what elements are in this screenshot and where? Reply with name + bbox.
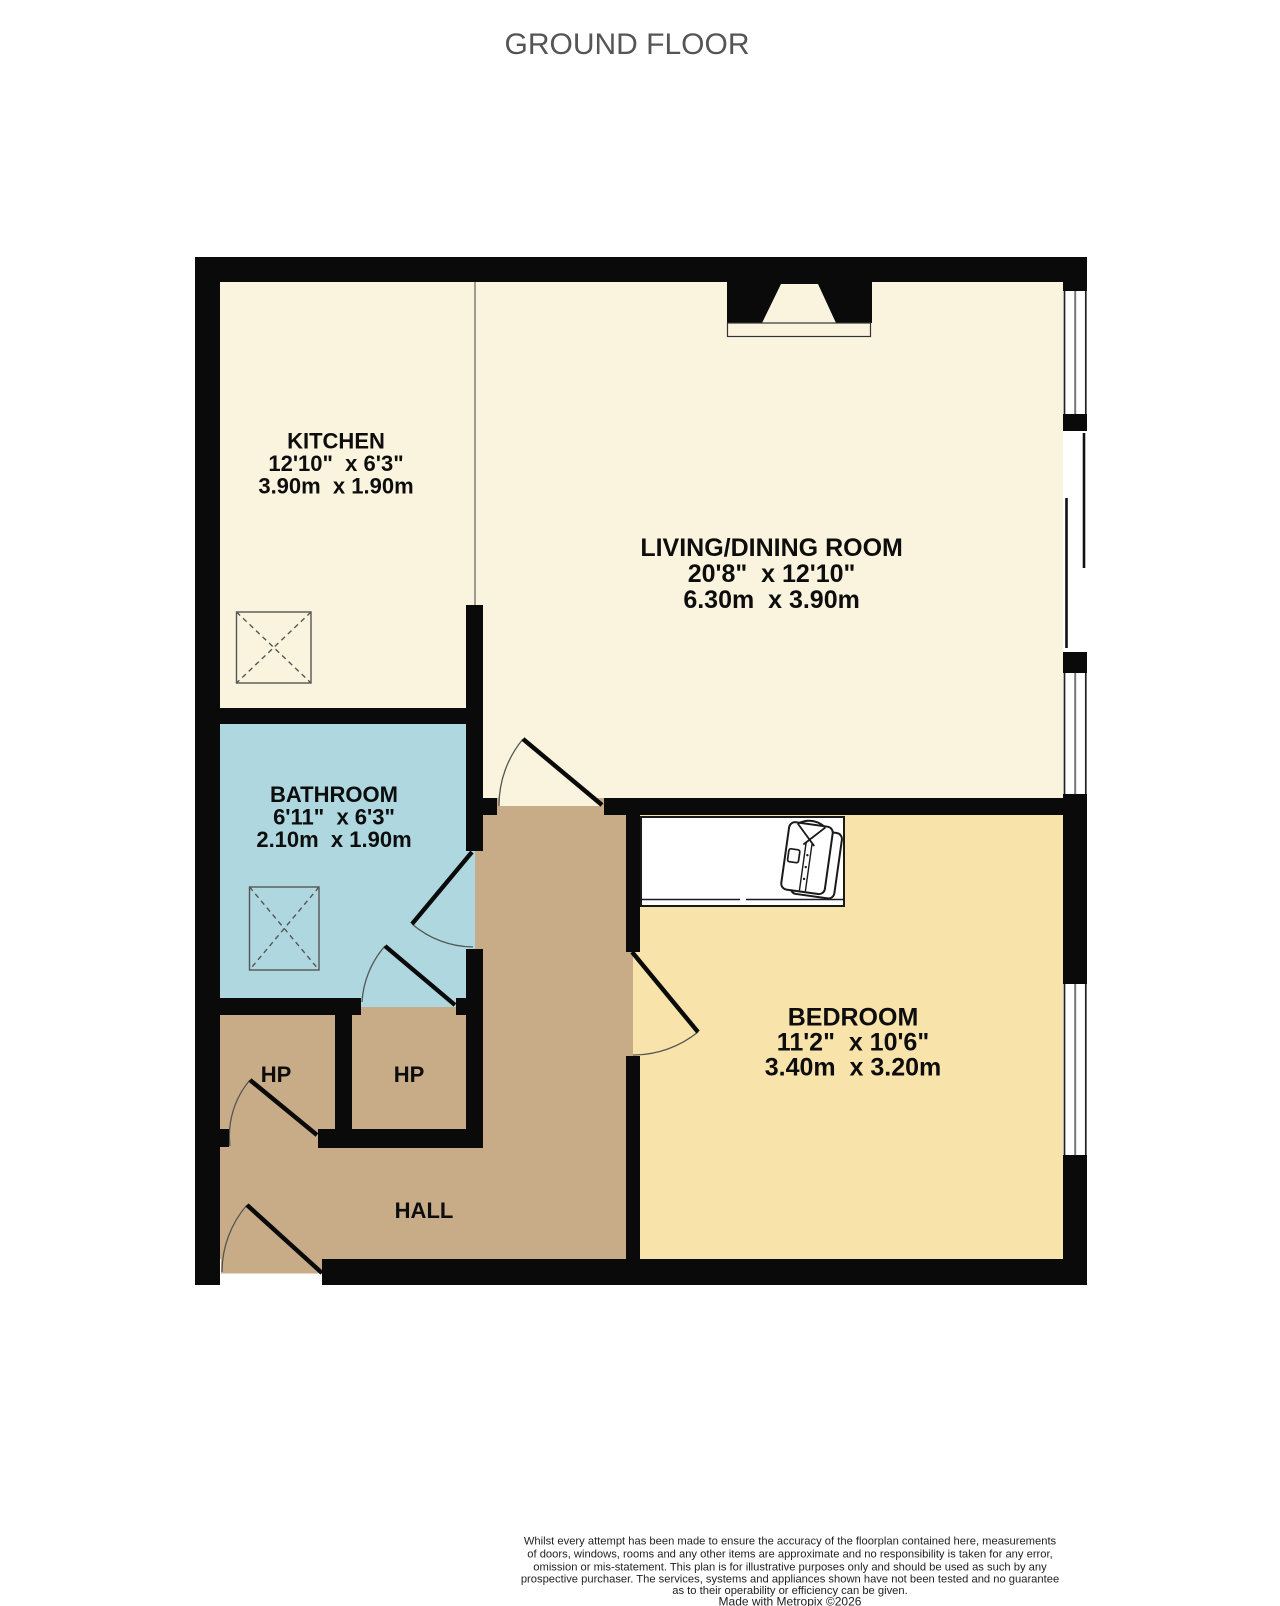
- svg-text:2.10m x 1.90m: 2.10m x 1.90m: [256, 827, 411, 852]
- svg-text:11'2" x 10'6": 11'2" x 10'6": [777, 1028, 929, 1056]
- svg-text:LIVING/DINING ROOM: LIVING/DINING ROOM: [640, 534, 903, 562]
- svg-text:6'11" x 6'3": 6'11" x 6'3": [273, 804, 395, 829]
- svg-text:Whilst every attempt has been: Whilst every attempt has been made to en…: [524, 1536, 1057, 1548]
- svg-text:BEDROOM: BEDROOM: [788, 1003, 919, 1031]
- svg-text:12'10" x 6'3": 12'10" x 6'3": [268, 451, 403, 476]
- svg-text:of doors, windows, rooms and a: of doors, windows, rooms and any other i…: [527, 1549, 1052, 1561]
- svg-text:GROUND FLOOR: GROUND FLOOR: [504, 28, 749, 61]
- svg-text:3.90m x 1.90m: 3.90m x 1.90m: [258, 473, 413, 498]
- svg-text:HP: HP: [261, 1062, 292, 1087]
- svg-text:HALL: HALL: [395, 1198, 454, 1223]
- svg-text:BATHROOM: BATHROOM: [270, 782, 398, 807]
- svg-text:KITCHEN: KITCHEN: [287, 429, 385, 454]
- svg-text:Made with Metropix ©2026: Made with Metropix ©2026: [719, 1595, 862, 1606]
- svg-text:6.30m x 3.90m: 6.30m x 3.90m: [683, 586, 860, 614]
- svg-text:omission or mis-statement. Thi: omission or mis-statement. This plan is …: [533, 1562, 1047, 1574]
- svg-text:20'8" x 12'10": 20'8" x 12'10": [688, 560, 856, 588]
- svg-text:3.40m x 3.20m: 3.40m x 3.20m: [765, 1054, 942, 1082]
- svg-text:HP: HP: [394, 1062, 425, 1087]
- svg-text:prospective purchaser. The ser: prospective purchaser. The services, sys…: [521, 1574, 1059, 1586]
